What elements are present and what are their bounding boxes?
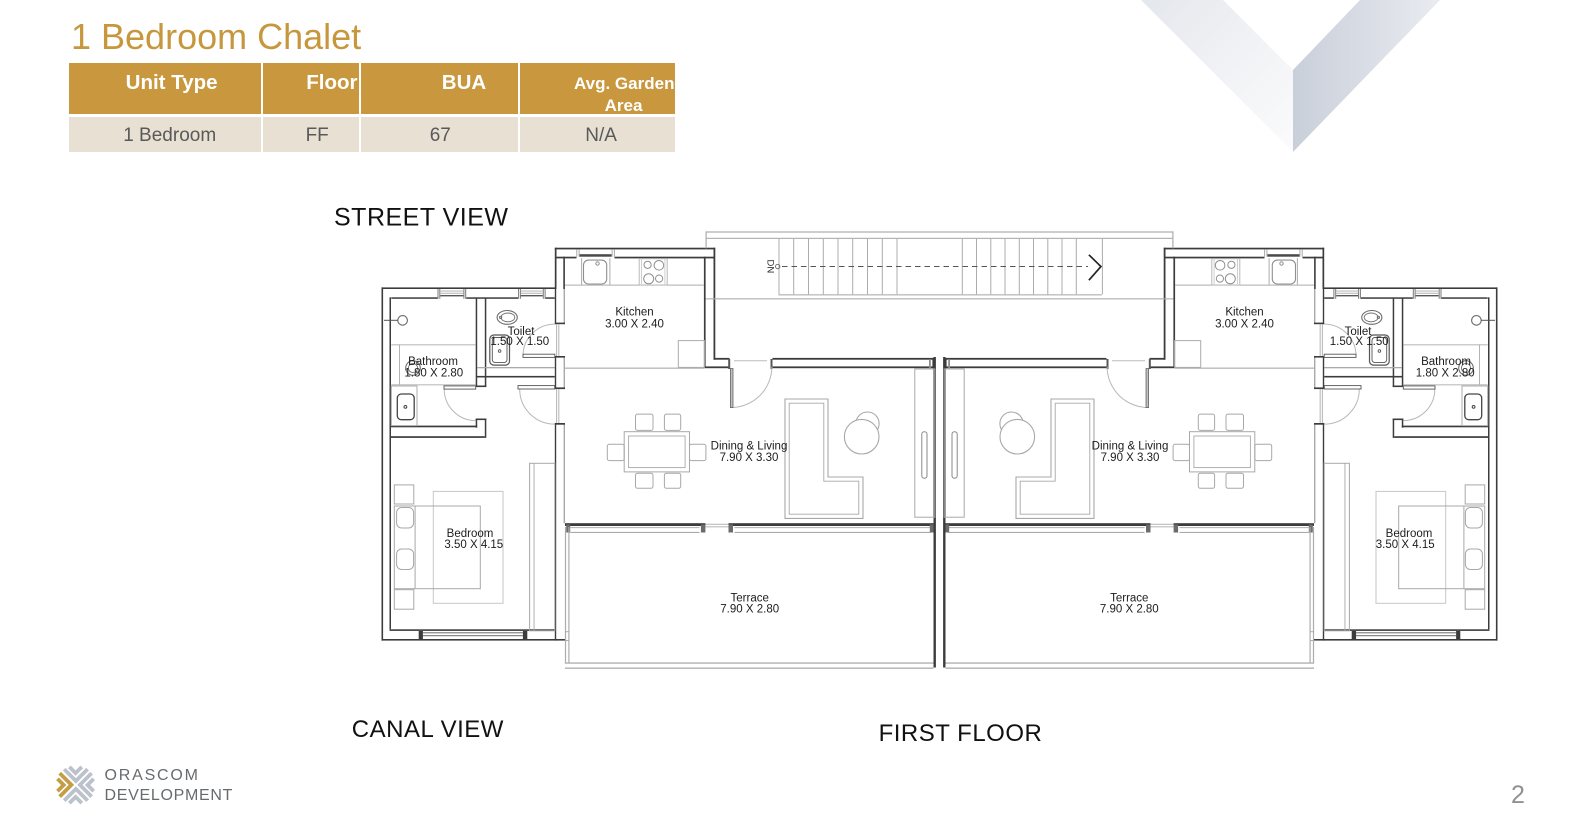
svg-text:FIRST FLOOR: FIRST FLOOR	[879, 720, 1043, 747]
svg-text:7.90 X 3.30: 7.90 X 3.30	[1101, 452, 1160, 464]
svg-text:Bathroom: Bathroom	[408, 356, 458, 368]
svg-text:3.50 X 4.15: 3.50 X 4.15	[444, 539, 503, 551]
svg-text:1.80 X 2.80: 1.80 X 2.80	[1416, 368, 1475, 380]
svg-text:Bedroom: Bedroom	[1386, 528, 1433, 540]
svg-text:7.90 X 2.80: 7.90 X 2.80	[1100, 604, 1159, 616]
svg-text:Bedroom: Bedroom	[447, 528, 494, 540]
svg-text:3.00 X 2.40: 3.00 X 2.40	[1215, 318, 1274, 330]
svg-text:DN: DN	[765, 260, 776, 274]
svg-text:Kitchen: Kitchen	[615, 307, 653, 319]
svg-text:1.80 X 2.80: 1.80 X 2.80	[404, 368, 463, 380]
svg-text:3.50 X 4.15: 3.50 X 4.15	[1376, 539, 1435, 551]
svg-text:Bathroom: Bathroom	[1421, 356, 1471, 368]
svg-text:1.50 X 1.50: 1.50 X 1.50	[490, 336, 549, 348]
svg-text:Kitchen: Kitchen	[1225, 307, 1263, 319]
svg-text:7.90 X 3.30: 7.90 X 3.30	[720, 452, 779, 464]
svg-text:3.00 X 2.40: 3.00 X 2.40	[605, 318, 664, 330]
svg-text:CANAL VIEW: CANAL VIEW	[352, 716, 504, 743]
svg-text:1.50 X 1.50: 1.50 X 1.50	[1330, 336, 1389, 348]
svg-text:Dining & Living: Dining & Living	[1092, 441, 1169, 453]
svg-text:Dining & Living: Dining & Living	[711, 441, 788, 453]
svg-text:STREET VIEW: STREET VIEW	[334, 204, 509, 232]
svg-text:7.90 X 2.80: 7.90 X 2.80	[720, 604, 779, 616]
